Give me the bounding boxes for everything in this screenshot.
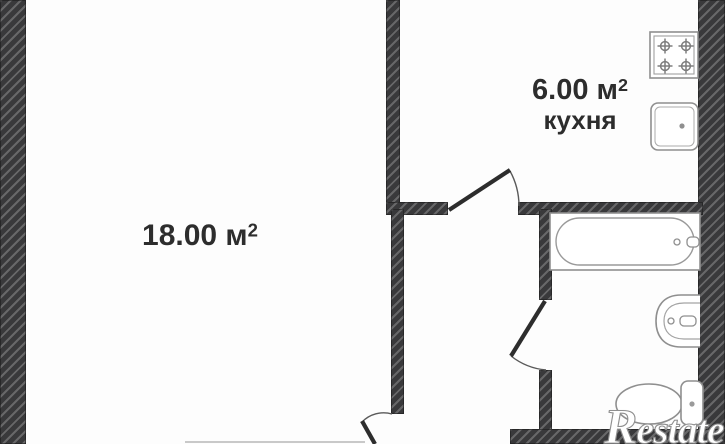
kitchen-label: 6.00 м2 кухня xyxy=(519,76,641,133)
washbasin-icon xyxy=(656,295,700,347)
kitchen-area-sup: 2 xyxy=(618,75,628,95)
restate-watermark: Restate xyxy=(604,401,724,444)
bathtub-icon xyxy=(550,213,700,270)
kitchen-area-value: 6.00 м xyxy=(532,74,618,106)
kitchen-sink-icon xyxy=(651,103,698,150)
stove-icon xyxy=(650,32,698,78)
kitchen-door xyxy=(449,170,519,210)
living-area-value: 18.00 м xyxy=(142,219,248,252)
floor-plan: 18.00 м2 6.00 м2 кухня Restate xyxy=(0,0,725,444)
bathroom-door xyxy=(511,301,546,370)
living-room-area-label: 18.00 м2 xyxy=(140,219,260,253)
living-area-sup: 2 xyxy=(248,220,258,241)
kitchen-area-label: 6.00 м2 xyxy=(519,76,641,106)
plan-graphics xyxy=(0,0,725,444)
kitchen-name-label: кухня xyxy=(519,107,641,134)
entrance-door xyxy=(362,413,392,444)
